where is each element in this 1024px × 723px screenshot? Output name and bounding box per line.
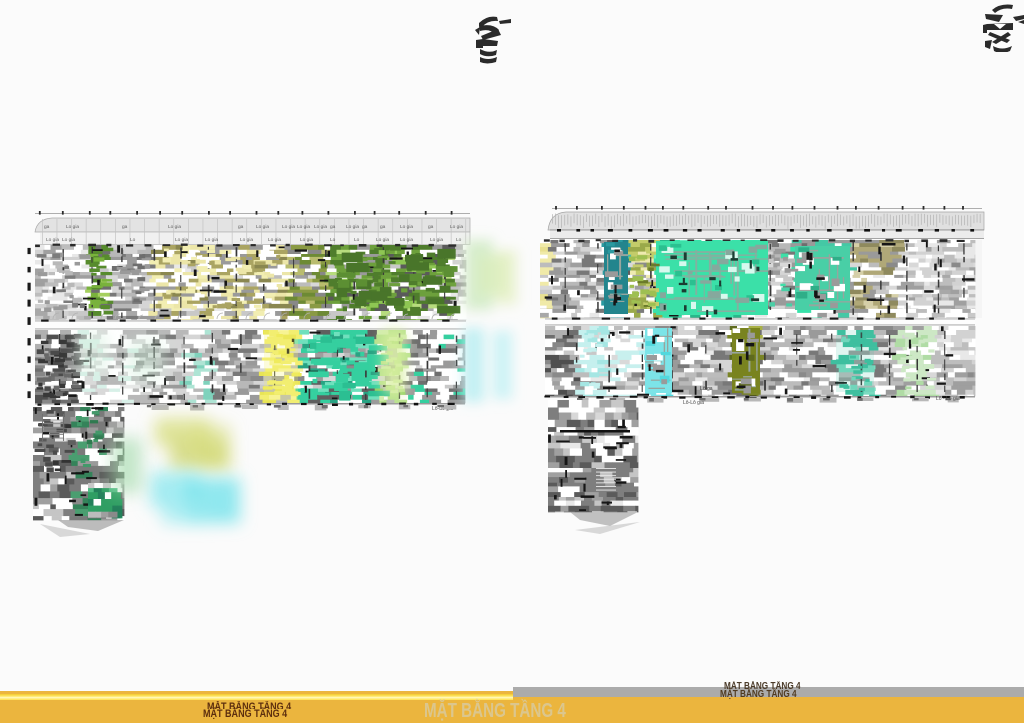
svg-text:Lo gia: Lo gia	[268, 237, 281, 243]
svg-text:Lo gia: Lo gia	[400, 237, 413, 243]
svg-text:Lo gia: Lo gia	[450, 224, 463, 230]
svg-text:Lo gia: Lo gia	[430, 237, 443, 243]
svg-text:ga: ga	[362, 225, 368, 230]
svg-text:Lo gia: Lo gia	[282, 224, 295, 230]
svg-text:ga: ga	[122, 225, 128, 230]
svg-text:Lo gia: Lo gia	[400, 224, 413, 230]
svg-text:Lo gia: Lo gia	[66, 224, 79, 230]
svg-text:Lo gia: Lo gia	[175, 237, 188, 243]
svg-text:Lo gia: Lo gia	[256, 224, 269, 230]
svg-text:Lo gia: Lo gia	[240, 237, 253, 243]
svg-text:Lo gia: Lo gia	[62, 237, 75, 243]
svg-text:ga: ga	[380, 225, 386, 230]
svg-text:Lo: Lo	[130, 237, 136, 243]
svg-text:Lo: Lo	[354, 237, 360, 243]
svg-text:Lo gia: Lo gia	[46, 237, 59, 243]
svg-text:Lo gia: Lo gia	[297, 224, 310, 230]
svg-text:Lo gia: Lo gia	[376, 237, 389, 243]
svg-text:Lo gia: Lo gia	[346, 224, 359, 230]
svg-text:ga: ga	[428, 225, 434, 230]
svg-text:ga: ga	[238, 225, 244, 230]
svg-text:ga: ga	[44, 225, 50, 230]
svg-text:Lo: Lo	[456, 237, 462, 243]
svg-text:ga: ga	[330, 225, 336, 230]
svg-text:Lo gia: Lo gia	[300, 237, 313, 243]
svg-text:Lo gia: Lo gia	[314, 224, 327, 230]
svg-text:Lo: Lo	[330, 237, 336, 243]
svg-text:Lo gia: Lo gia	[168, 224, 181, 230]
svg-text:Lo gia: Lo gia	[205, 237, 218, 243]
